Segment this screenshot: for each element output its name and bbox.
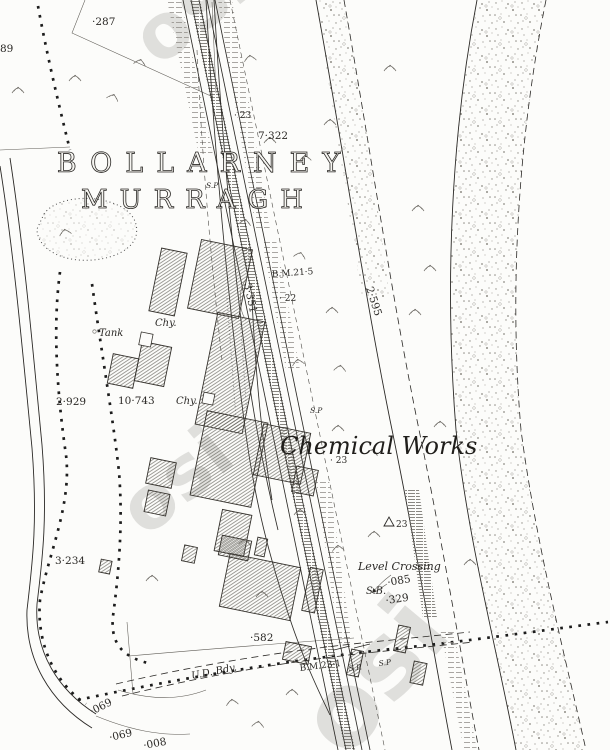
signal-box-label: S.B.	[366, 586, 386, 597]
signal-post-mid-label: S.P	[310, 406, 323, 415]
signal-post-lower-2-label: S.P	[378, 657, 392, 668]
area-7-322: 7·322	[258, 130, 288, 142]
spot-level-582: ·582	[250, 632, 273, 644]
benchmark-upper: B.M.21·5	[272, 267, 314, 280]
spot-level-069-b: ·069	[108, 727, 133, 744]
level-crossing-label: Level Crossing	[357, 560, 441, 573]
spot-level-22: · 22	[279, 294, 296, 304]
spot-level-069-a: ·069	[88, 696, 114, 717]
area-2-929: 2·929	[56, 396, 86, 408]
trig-point-icon	[384, 517, 394, 526]
spot-level-23-upper: · 23	[234, 111, 251, 121]
tank-symbol	[93, 330, 96, 333]
chemical-works-label: Chemical Works	[280, 432, 477, 460]
signal-post-lower-1-label: S.P.	[348, 662, 362, 673]
spot-level-287: ·287	[92, 16, 115, 28]
trig-point-value: 23	[396, 520, 408, 530]
tank-label: Tank	[99, 328, 123, 339]
historic-os-map: osi osi osi	[0, 0, 610, 750]
chimney-upper-label: Chy.	[155, 318, 177, 329]
ud-boundary-label: U.D. Bdy.	[190, 662, 237, 682]
townland-name-line1: BOLLARNEY	[57, 148, 353, 179]
spot-level-23-mid: · 23	[330, 456, 347, 466]
spot-level-008: ·008	[142, 736, 167, 750]
area-3-234: 3·234	[55, 555, 85, 567]
lanes-and-fences	[0, 0, 354, 734]
spot-level-89: 89	[0, 43, 13, 55]
townland-name-line2: MURRAGH	[81, 185, 315, 215]
area-10-743: 10·743	[118, 395, 155, 407]
map-canvas[interactable]: osi osi osi	[0, 0, 610, 750]
signal-post-upper-label: S.P	[206, 181, 219, 190]
chimney-lower-label: Chy.	[176, 396, 198, 407]
